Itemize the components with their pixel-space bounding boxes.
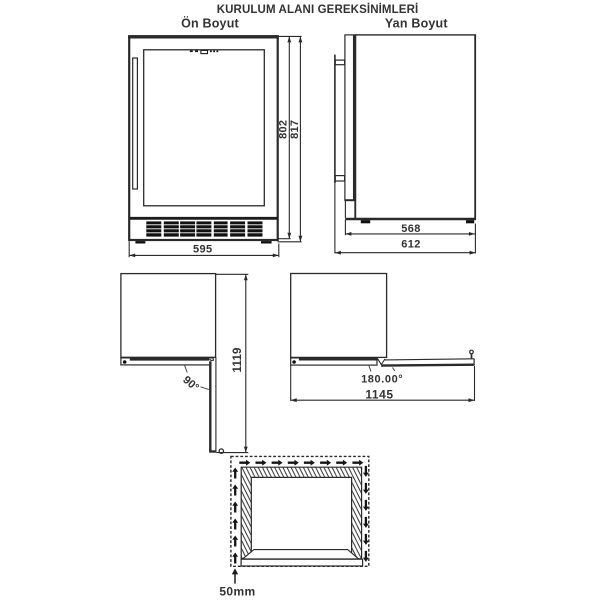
svg-text:1145: 1145: [365, 387, 393, 401]
svg-text:612: 612: [401, 239, 421, 251]
svg-text:KURULUM ALANI GEREKSİNİMLERİ: KURULUM ALANI GEREKSİNİMLERİ: [217, 3, 419, 16]
svg-text:595: 595: [193, 244, 213, 256]
svg-text:Ön Boyut: Ön Boyut: [181, 16, 239, 31]
svg-text:817: 817: [289, 120, 301, 139]
svg-text:50mm: 50mm: [219, 585, 255, 599]
svg-text:90°: 90°: [180, 374, 201, 394]
svg-text:180.00°: 180.00°: [361, 373, 403, 385]
svg-text:1119: 1119: [232, 347, 244, 372]
svg-text:Yan Boyut: Yan Boyut: [385, 17, 449, 31]
svg-text:568: 568: [401, 223, 421, 235]
svg-text:802: 802: [278, 120, 290, 139]
